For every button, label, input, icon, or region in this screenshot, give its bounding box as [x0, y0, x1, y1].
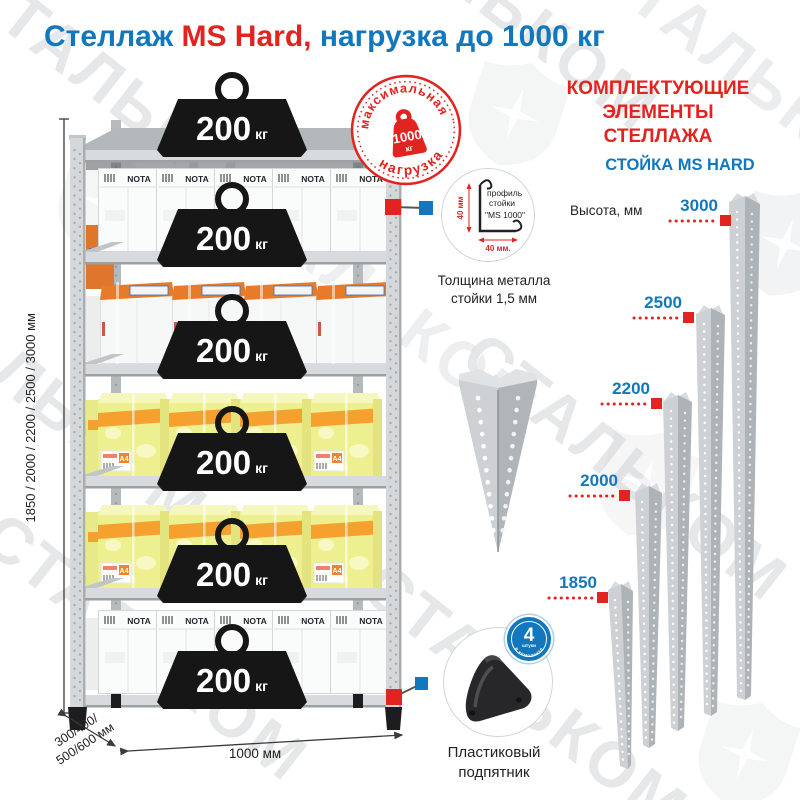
height-label-2500: 2500: [630, 293, 682, 313]
profile-dim-horizontal: 40 мм.: [485, 244, 510, 253]
load-value: 200: [196, 664, 251, 697]
badge-unit: штуки: [522, 643, 536, 648]
foot-label-line: подпятник: [424, 763, 564, 783]
shelf-load-weight: 200кг: [157, 72, 307, 157]
load-value: 200: [196, 112, 251, 145]
rack-front-post-right: [385, 135, 402, 712]
product-infographic: СТАЛЬКОМ СТАЛЬКОМ СТАЛЬКОМ СТАЛЬКОМ СТАЛ…: [0, 0, 800, 800]
rack-width-label: 1000 мм: [200, 746, 310, 761]
components-header: КОМПЛЕКТУЮЩИЕ ЭЛЕМЕНТЫ СТЕЛЛАЖА: [550, 77, 766, 148]
foot-label: Пластиковый подпятник: [424, 743, 564, 782]
load-value: 200: [196, 558, 251, 591]
load-value: 200: [196, 222, 251, 255]
profile-detail-circle: 40 мм 40 мм. профиль стойки "MS 1000": [441, 168, 535, 262]
post-section-title: СТОЙКА MS HARD: [594, 156, 766, 175]
shelf-load-weight: 200кг: [157, 294, 307, 379]
rack-front-post-left: [69, 135, 86, 712]
included-count-badge: 4 штуки в комплекте: [505, 615, 553, 663]
foot-label-line: Пластиковый: [424, 743, 564, 763]
components-header-line1: КОМПЛЕКТУЮЩИЕ: [550, 77, 766, 101]
load-unit: кг: [255, 678, 268, 694]
plastic-foot-icon: [466, 655, 532, 721]
height-label-2000: 2000: [566, 471, 618, 491]
rack-foot: [385, 707, 402, 730]
height-leader-dots: [549, 221, 718, 598]
shelf-load-weight: 200кг: [157, 182, 307, 267]
note-line: стойки 1,5 мм: [428, 290, 560, 308]
load-value: 200: [196, 334, 251, 367]
load-value: 200: [196, 446, 251, 479]
post-perspective-view: [459, 369, 537, 553]
profile-thickness-note: Толщина металла стойки 1,5 мм: [428, 272, 560, 307]
load-unit: кг: [255, 460, 268, 476]
shelf-load-weight: 200кг: [157, 518, 307, 603]
profile-callout-marker: [385, 199, 433, 215]
rack-foot: [353, 694, 363, 708]
load-unit: кг: [255, 348, 268, 364]
height-dimension-line: [59, 119, 69, 713]
profile-caption-1: профиль: [487, 188, 523, 198]
post-3000: [729, 193, 760, 700]
height-axis-label: Высота, мм: [570, 203, 642, 218]
profile-caption-2: стойки: [489, 198, 515, 208]
note-line: Толщина металла: [428, 272, 560, 290]
post-2500: [696, 305, 725, 716]
shelf-load-weight: 200кг: [157, 624, 307, 709]
max-load-stamp: максимальная нагрузка 1000 кг: [339, 63, 473, 197]
profile-caption-3: "MS 1000": [485, 210, 525, 220]
height-label-1850: 1850: [545, 573, 597, 593]
load-unit: кг: [255, 126, 268, 142]
profile-dim-vertical: 40 мм: [456, 196, 465, 219]
height-label-2200: 2200: [598, 379, 650, 399]
post-2200: [663, 392, 692, 731]
load-unit: кг: [255, 572, 268, 588]
rack-height-options-text: 1850 / 2000 / 2200 / 2500 / 3000 мм: [23, 313, 38, 522]
shelf-load-weight: 200кг: [157, 406, 307, 491]
rack-height-options: 1850 / 2000 / 2200 / 2500 / 3000 мм: [10, 120, 50, 716]
post-2000: [635, 483, 662, 748]
height-label-3000: 3000: [666, 196, 718, 216]
components-header-line2: ЭЛЕМЕНТЫ СТЕЛЛАЖА: [550, 101, 766, 149]
post-1850: [608, 581, 633, 769]
load-unit: кг: [255, 236, 268, 252]
